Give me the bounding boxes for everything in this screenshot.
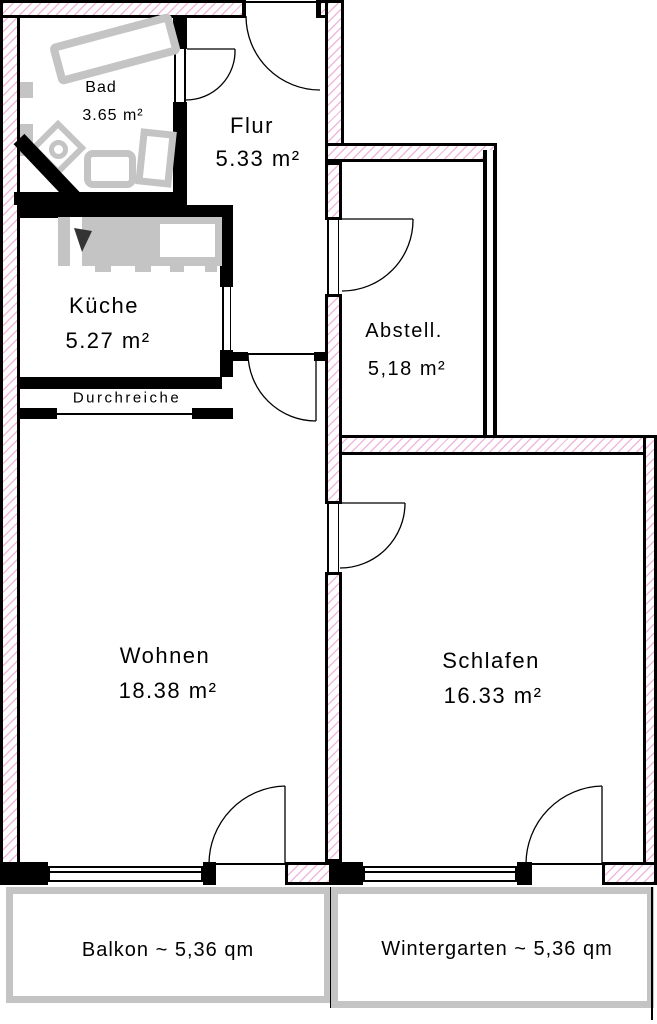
bad-door-jamb-left: [174, 49, 176, 102]
durchreiche-opening-line: [57, 413, 193, 415]
bottom-wall-pier-1: [203, 862, 216, 885]
balkon-door-threshold: [216, 863, 285, 865]
schlafen-top-wall: [325, 435, 657, 455]
bottom-wall-pier-4: [517, 862, 532, 885]
kueche-door-jamb-right: [230, 287, 232, 350]
room-label-flur: Flur: [230, 115, 274, 137]
room-area-abstell: 5,18 m²: [368, 359, 446, 379]
outer-wall-top: [0, 0, 245, 18]
schlafen-door-jamb-left: [327, 503, 329, 573]
room-label-wohnen: Wohnen: [120, 645, 211, 667]
bottom-wall-pier-2: [285, 862, 332, 885]
abstell-top-wall: [325, 143, 497, 162]
divider-wall-middle: [325, 294, 342, 504]
entrance-jamb-right: [316, 0, 318, 18]
wintergarten-label: Wintergarten ~ 5,36 qm: [381, 939, 613, 959]
entrance-door-arc: [246, 16, 320, 90]
balkon-door-arc: [209, 786, 285, 864]
window-schlafen: [363, 866, 517, 882]
wohnen-door-head-line: [248, 353, 314, 355]
kueche-bottom-wall: [17, 377, 222, 389]
abstell-door-jamb-left: [327, 219, 329, 295]
kitchen-sink: [160, 224, 215, 257]
balkon-label: Balkon ~ 5,36 qm: [82, 940, 254, 960]
window-wohnen: [48, 866, 203, 882]
floor-plan: Bad 3.65 m² Flur 5.33 m² Küche 5.27 m² D…: [0, 0, 657, 1024]
room-label-abstell: Abstell.: [365, 321, 443, 341]
room-label-bad: Bad: [85, 80, 116, 96]
durchreiche-wall-left: [17, 408, 57, 419]
outer-wall-left: [0, 0, 20, 885]
abstell-right-wall: [483, 150, 497, 435]
room-area-kueche: 5.27 m²: [65, 330, 150, 352]
durchreiche-wall-right: [192, 408, 233, 419]
counter-tab-2: [135, 265, 151, 272]
wohnen-door-pier-left: [233, 352, 248, 361]
bidet: [84, 150, 136, 188]
bottom-wall-pier-3: [332, 862, 363, 885]
counter-tab-3: [170, 265, 184, 272]
abstell-door-jamb-right: [338, 219, 340, 295]
wintergarten-door-arc: [526, 786, 602, 864]
counter-tab-4: [205, 265, 217, 272]
kueche-right-wall-lower: [220, 350, 233, 377]
abstell-door-arc: [342, 219, 413, 291]
bad-door-jamb-right: [184, 49, 186, 102]
entrance-jamb-left: [244, 0, 246, 18]
bad-bottom-wall: [14, 192, 187, 205]
outer-wall-right: [643, 435, 657, 885]
schlafen-door-arc: [340, 503, 405, 568]
wohnen-door-pier-right: [314, 352, 327, 361]
durchreiche-label: Durchreiche: [73, 391, 181, 406]
outdoor-divider-line: [330, 887, 332, 1008]
counter-tab-1: [95, 265, 111, 272]
kueche-door-jamb-left: [222, 287, 224, 350]
room-label-kueche: Küche: [69, 295, 139, 317]
divider-wall-lower: [325, 572, 342, 862]
divider-wall-upper: [325, 162, 342, 220]
outer-wall-flur-right: [325, 0, 344, 152]
bottom-wall-corner-right: [602, 862, 657, 885]
schlafen-door-jamb-right: [338, 503, 340, 573]
bad-door-arc: [186, 49, 235, 100]
wohnen-door-arc: [248, 353, 316, 421]
wintergarten-door-threshold: [532, 863, 602, 865]
bath-cabinet: [135, 128, 177, 187]
wintergarten-right-line: [651, 887, 653, 1020]
room-label-schlafen: Schlafen: [442, 650, 540, 672]
kitchen-counter-gap: [70, 217, 82, 266]
entrance-face-line: [245, 1, 318, 3]
bath-wall-fixture-1: [20, 82, 33, 98]
toilet-bowl: [49, 140, 68, 159]
bath-wall-fixture-2: [20, 124, 33, 156]
room-area-bad: 3.65 m²: [82, 108, 143, 124]
room-area-schlafen: 16.33 m²: [444, 685, 543, 707]
room-area-wohnen: 18.38 m²: [119, 680, 218, 702]
bathtub: [49, 12, 182, 85]
bottom-wall-corner-left: [0, 862, 48, 885]
room-area-flur: 5.33 m²: [215, 148, 300, 170]
